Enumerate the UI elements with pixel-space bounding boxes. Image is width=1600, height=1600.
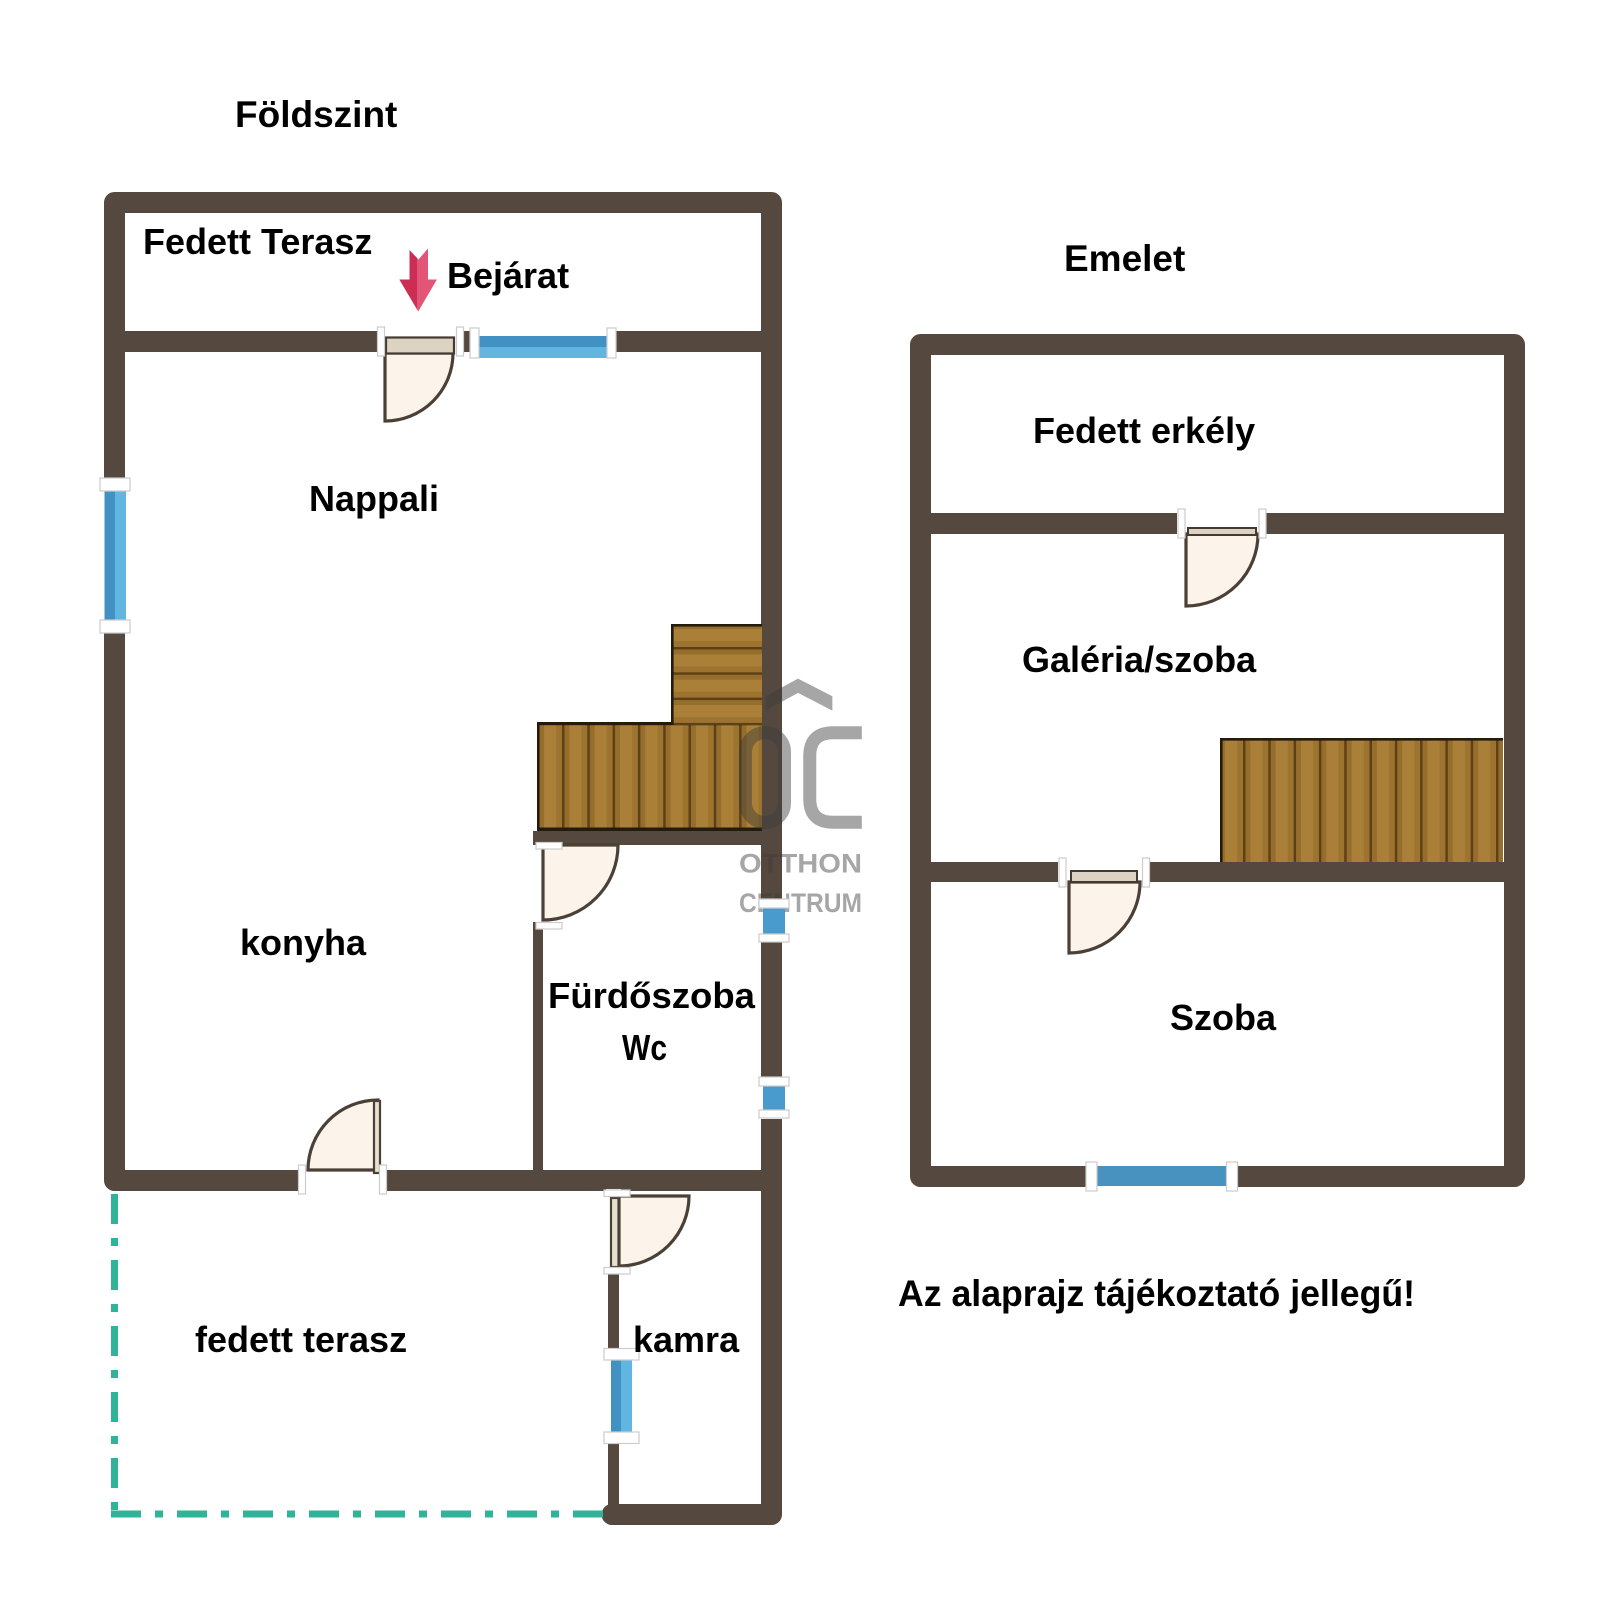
svg-text:CENTRUM: CENTRUM bbox=[739, 888, 862, 918]
svg-text:Az alaprajz tájékoztató jelleg: Az alaprajz tájékoztató jellegű! bbox=[898, 1273, 1415, 1314]
svg-text:Földszint: Földszint bbox=[235, 94, 397, 135]
svg-text:konyha: konyha bbox=[240, 922, 367, 963]
svg-text:Fedett Terasz: Fedett Terasz bbox=[143, 221, 372, 262]
svg-text:kamra: kamra bbox=[633, 1319, 740, 1360]
svg-text:Emelet: Emelet bbox=[1064, 238, 1185, 279]
svg-text:Wc: Wc bbox=[622, 1027, 667, 1068]
svg-text:Fedett erkély: Fedett erkély bbox=[1033, 410, 1255, 451]
svg-text:Galéria/szoba: Galéria/szoba bbox=[1022, 639, 1257, 680]
svg-text:fedett terasz: fedett terasz bbox=[195, 1319, 407, 1360]
svg-text:Szoba: Szoba bbox=[1170, 997, 1277, 1038]
svg-text:Fürdőszoba: Fürdőszoba bbox=[548, 975, 756, 1016]
svg-text:OTTHON: OTTHON bbox=[739, 849, 862, 879]
svg-text:Nappali: Nappali bbox=[309, 478, 439, 519]
svg-text:Bejárat: Bejárat bbox=[447, 255, 569, 296]
